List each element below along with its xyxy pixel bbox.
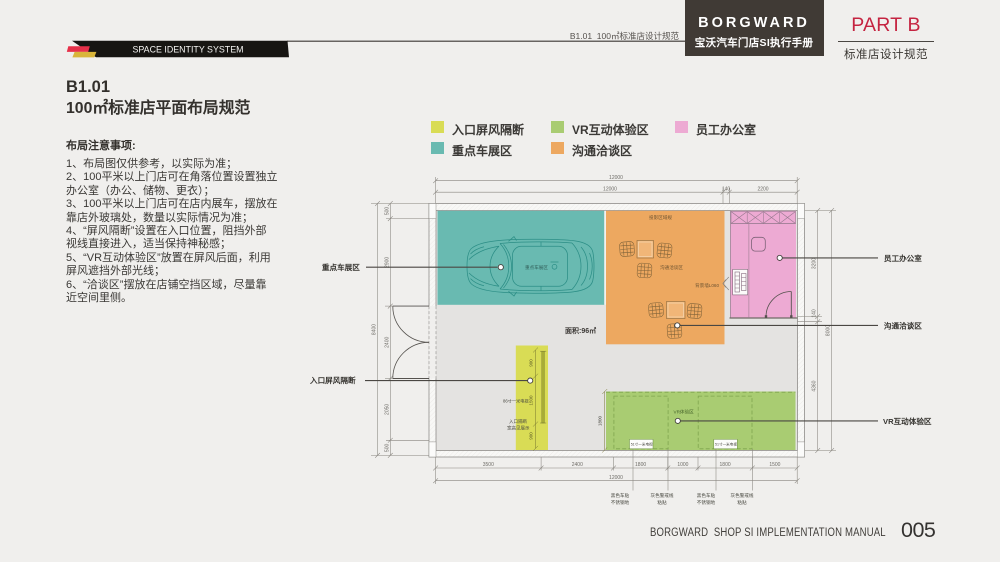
svg-text:黑色车贴: 黑色车贴: [697, 492, 716, 499]
svg-text:入口隔断: 入口隔断: [509, 418, 527, 425]
svg-text:900: 900: [529, 359, 534, 367]
svg-text:VR互动体验区: VR互动体验区: [883, 416, 932, 426]
svg-text:不锈钢地: 不锈钢地: [697, 499, 716, 506]
svg-text:宽高见展示: 宽高见展示: [507, 425, 530, 432]
svg-text:1800: 1800: [598, 415, 603, 426]
svg-text:沟通洽谈区: 沟通洽谈区: [660, 264, 683, 271]
svg-text:500: 500: [384, 444, 390, 453]
svg-text:员工办公室: 员工办公室: [884, 253, 922, 263]
svg-text:不锈钢地: 不锈钢地: [611, 499, 630, 506]
svg-text:重点车展区: 重点车展区: [525, 264, 548, 271]
svg-text:灰色警戒线: 灰色警戒线: [731, 492, 754, 499]
svg-text:背景墙L060: 背景墙L060: [695, 282, 719, 289]
svg-text:面积:96㎡: 面积:96㎡: [565, 326, 596, 335]
svg-text:1800: 1800: [720, 462, 731, 468]
svg-text:8000: 8000: [826, 325, 832, 336]
svg-text:900: 900: [529, 432, 534, 440]
svg-text:4360: 4360: [812, 380, 818, 391]
svg-text:2900: 2900: [384, 257, 390, 268]
svg-text:140: 140: [812, 309, 818, 318]
svg-text:投影区域规: 投影区域规: [649, 214, 672, 221]
svg-text:12000: 12000: [609, 175, 623, 181]
svg-text:粘贴: 粘贴: [737, 499, 747, 506]
svg-text:VR体验区: VR体验区: [674, 409, 695, 416]
svg-text:2050: 2050: [384, 404, 390, 415]
svg-text:1000: 1000: [677, 462, 688, 468]
svg-text:3200: 3200: [812, 258, 818, 269]
svg-text:51寸一米电视: 51寸一米电视: [631, 442, 653, 447]
svg-text:51寸一米电视: 51寸一米电视: [715, 442, 737, 447]
svg-text:2400: 2400: [384, 337, 390, 348]
svg-text:8400: 8400: [372, 324, 378, 335]
svg-text:3500: 3500: [483, 462, 494, 468]
svg-text:重点车展区: 重点车展区: [322, 262, 360, 272]
svg-text:灰色警戒线: 灰色警戒线: [651, 492, 674, 499]
svg-text:1500: 1500: [769, 462, 780, 468]
svg-text:沟通洽谈区: 沟通洽谈区: [884, 321, 922, 331]
svg-text:140: 140: [722, 186, 731, 192]
svg-text:12000: 12000: [603, 186, 617, 192]
svg-text:2400: 2400: [572, 462, 583, 468]
svg-text:12000: 12000: [609, 475, 623, 481]
svg-text:1500: 1500: [529, 395, 534, 406]
svg-text:2200: 2200: [757, 186, 768, 192]
svg-text:500: 500: [384, 207, 390, 216]
svg-text:入口屏风隔断: 入口屏风隔断: [309, 375, 356, 385]
svg-text:86寸一米电视: 86寸一米电视: [503, 398, 529, 405]
svg-text:1800: 1800: [635, 462, 646, 468]
svg-text:粘贴: 粘贴: [657, 499, 667, 506]
svg-text:SPACE IDENTITY SYSTEM: SPACE IDENTITY SYSTEM: [133, 44, 244, 55]
svg-text:黑色车贴: 黑色车贴: [611, 492, 630, 499]
